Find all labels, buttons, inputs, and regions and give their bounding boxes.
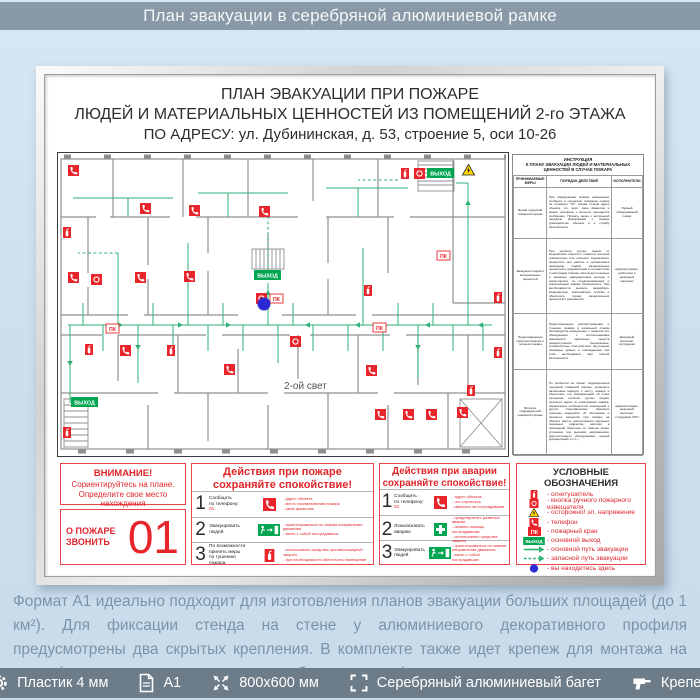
action-notes: - ориентироваться по знакам направления … <box>452 544 509 563</box>
legend-panel: УСЛОВНЫЕ ОБОЗНАЧЕНИЯ - огнетушитель - кн… <box>516 463 646 565</box>
legend-label: - телефон <box>547 519 578 526</box>
main-route-icon <box>523 545 545 554</box>
spec-label: 800х600 мм <box>239 675 319 691</box>
marker-phone-icon <box>366 365 377 376</box>
legend-item: ВЫХОД - основной выход <box>521 536 641 545</box>
action-row: 3 Эвакуировать людей - ориентироваться п… <box>380 540 509 566</box>
instruction-action: При наличии угрозы людям от воздействия … <box>547 238 611 314</box>
marker-exit-sign: ВЫХОД <box>427 168 454 178</box>
spec-label: Пластик 4 мм <box>17 675 108 691</box>
floor-plan-svg: ПКПКПКПКВЫХОДВЫХОДВЫХОД <box>58 153 508 456</box>
instruction-measure: Предотвращение распространения и тушение… <box>514 314 547 370</box>
resize-arrows-icon <box>211 673 231 693</box>
col-action: ПОРЯДОК ДЕЙСТВИЙ <box>547 175 611 187</box>
action-number: 2 <box>380 519 394 541</box>
board-title-line3: ПО АДРЕСУ: ул. Дубининская, д. 53, строе… <box>50 125 650 145</box>
spec-item: 800х600 мм <box>211 673 319 693</box>
svg-text:ВЫХОД: ВЫХОД <box>525 539 543 544</box>
marker-phone-icon <box>403 409 414 420</box>
action-number: 1 <box>380 491 394 513</box>
fire-hydrant-icon: ПК <box>528 527 541 536</box>
action-row: 1 Сообщить по телефону:01 - адрес объект… <box>192 491 373 517</box>
evacuation-routes <box>68 180 492 403</box>
action-label: Сообщить по телефону:01 <box>209 496 255 513</box>
page: { "header": { "title": "План эвакуации в… <box>0 0 700 700</box>
svg-text:ВЫХОД: ВЫХОД <box>430 172 451 178</box>
marker-extinguisher-icon <box>467 385 475 396</box>
instruction-measure: Вызов городской пожарной охраны <box>514 188 547 239</box>
instruction-action: Предотвращение распространения и тушение… <box>547 314 611 370</box>
marker-extinguisher-icon <box>167 345 175 356</box>
fire-call-box: О ПОЖАРЕ ЗВОНИТЬ 01 <box>60 509 186 565</box>
accident-actions-panel: Действия при аварии сохраняйте спокойств… <box>379 463 510 565</box>
document-icon <box>138 673 155 693</box>
legend-item: - кнопка ручного пожарного извещателя <box>521 499 641 508</box>
legend-label: - основной выход <box>547 537 600 544</box>
action-row: 2 Локализовать аварию - предотвратить ра… <box>380 515 509 541</box>
marker-phone-icon <box>135 272 146 283</box>
board-title-line1: ПЛАН ЭВАКУАЦИИ ПРИ ПОЖАРЕ <box>50 85 650 105</box>
marker-phone-icon <box>457 407 468 418</box>
board-title: ПЛАН ЭВАКУАЦИИ ПРИ ПОЖАРЕ ЛЮДЕЙ И МАТЕРИ… <box>50 85 650 145</box>
action-notes: - ориентироваться по знакам направления … <box>283 523 373 537</box>
fire-actions-panel: Действия при пожаре сохраняйте спокойств… <box>191 463 374 565</box>
fire-actions-title1: Действия при пожаре <box>192 466 373 479</box>
accident-actions-title2: сохраняйте спокойствие! <box>380 478 509 490</box>
legend-label: - пожарный кран <box>547 528 598 535</box>
attention-line2: Определите свое место нахождения <box>61 490 185 509</box>
instruction-row: Эвакуация людей и материальных ценностей… <box>514 238 643 314</box>
marker-electric-warning-icon <box>462 164 474 175</box>
attention-line1: Сориентируйтесь на плане. <box>61 480 185 490</box>
spec-item: А1 <box>138 673 181 693</box>
legend-title: УСЛОВНЫЕ ОБОЗНАЧЕНИЯ <box>521 467 641 489</box>
svg-text:ПК: ПК <box>109 327 117 333</box>
extinguisher-icon <box>529 490 539 499</box>
marker-phone-icon <box>426 409 437 420</box>
marker-phone-icon <box>120 345 131 356</box>
action-number: 3 <box>380 542 394 564</box>
marker-you-are-here <box>258 298 271 311</box>
marker-extinguisher-icon <box>401 168 409 179</box>
action-label: По возможности принять меры по тушению п… <box>209 544 255 566</box>
marker-phone-icon <box>224 364 235 375</box>
instruction-row: Предотвращение распространения и тушение… <box>514 314 643 370</box>
instruction-measure: Встреча подразделений пожарной охраны <box>514 369 547 455</box>
spec-item: Пластик 4 мм <box>0 673 108 693</box>
svg-text:ВЫХОД: ВЫХОД <box>257 274 278 280</box>
legend-item: - осторожно! эл. напряжение <box>521 508 641 517</box>
marker-hydrant-icon: ПК <box>437 251 450 260</box>
stairs <box>64 161 502 447</box>
marker-extinguisher-icon <box>494 292 502 303</box>
accident-actions-title1: Действия при аварии <box>380 466 509 478</box>
marker-phone-icon <box>68 165 79 176</box>
marker-phone-icon <box>68 272 79 283</box>
spec-label: Крепеж <box>661 675 700 691</box>
action-row: 2 Эвакуировать людей - ориентироваться п… <box>192 517 373 543</box>
route-arrows <box>67 200 483 366</box>
product-title: План эвакуации в серебряной алюминиевой … <box>143 6 557 26</box>
marker-exit-sign: ВЫХОД <box>71 397 98 407</box>
legend-label: - осторожно! эл. напряжение <box>547 509 635 516</box>
marker-phone-icon <box>375 409 386 420</box>
spare-route-icon <box>523 554 545 563</box>
second-light-label: 2-ой свет <box>284 381 327 392</box>
plan-frame: ПЛАН ЭВАКУАЦИИ ПРИ ПОЖАРЕ ЛЮДЕЙ И МАТЕРИ… <box>36 66 664 585</box>
action-number: 3 <box>192 544 209 566</box>
marker-hydrant-icon: ПК <box>106 324 119 333</box>
legend-label: - запасной путь эвакуации <box>547 555 628 562</box>
extinguisher-icon <box>263 549 276 562</box>
attention-box: ВНИМАНИЕ! Сориентируйтесь на плане. Опре… <box>60 463 186 505</box>
fire-actions-title2: сохраняйте спокойствие! <box>192 479 373 492</box>
you-are-here-icon <box>529 564 539 573</box>
instruction-action: По прибытии на объект подразделения горо… <box>547 369 611 455</box>
action-notes: - адрес объекта- что случилось- имеются … <box>452 495 509 509</box>
marker-extinguisher-icon <box>63 227 71 238</box>
col-exec: ИСПОЛНИТЕЛИ <box>611 175 642 187</box>
legend-label: - вы находитесь здесь <box>547 565 615 572</box>
action-notes: - адрес объекта- место возникновения пож… <box>283 497 373 511</box>
accident-actions-title: Действия при аварии сохраняйте спокойств… <box>380 464 509 489</box>
action-number: 1 <box>192 493 209 515</box>
instruction-exec: Администрация, работники и дежурный перс… <box>611 238 642 314</box>
gear-icon <box>0 673 9 693</box>
marker-extinguisher-icon <box>364 285 372 296</box>
col-measure: ПРИНИМАЕМЫЕ МЕРЫ <box>514 175 547 187</box>
marker-call-point-icon <box>91 274 102 285</box>
instruction-row: Встреча подразделений пожарной охраны По… <box>514 369 643 455</box>
frame-mat: ПЛАН ЭВАКУАЦИИ ПРИ ПОЖАРЕ ЛЮДЕЙ И МАТЕРИ… <box>45 75 655 576</box>
instruction-grid: ПРИНИМАЕМЫЕ МЕРЫ ПОРЯДОК ДЕЙСТВИЙ ИСПОЛН… <box>513 175 643 456</box>
marker-hydrant-icon: ПК <box>373 323 386 332</box>
marker-phone-icon <box>184 271 195 282</box>
instruction-exec: Первый обнаруживший пожар <box>611 188 642 239</box>
svg-text:ПК: ПК <box>376 326 384 332</box>
svg-text:ПК: ПК <box>440 254 448 260</box>
call-point-icon <box>528 499 540 508</box>
fire-actions-title: Действия при пожаре сохраняйте спокойств… <box>192 464 373 491</box>
first-aid-cross-icon <box>434 523 447 536</box>
exit-route-icon <box>258 524 280 536</box>
phone-icon <box>528 518 540 527</box>
legend-item: - основной путь эвакуации <box>521 545 641 554</box>
phone-icon <box>263 498 276 511</box>
spec-footer-bar: Пластик 4 мм А1 800х600 мм Серебряный ал… <box>0 668 700 698</box>
marker-call-point-icon <box>414 168 425 179</box>
spec-label: Серебряный алюминиевый багет <box>377 675 601 691</box>
action-row: 3 По возможности принять меры по тушению… <box>192 542 373 568</box>
legend-label: - основной путь эвакуации <box>547 546 628 553</box>
action-label: Локализовать аварию <box>394 524 428 535</box>
svg-text:ПК: ПК <box>273 297 281 303</box>
instruction-row: Вызов городской пожарной охраны При обна… <box>514 188 643 239</box>
marker-phone-icon <box>189 205 200 216</box>
svg-text:ВЫХОД: ВЫХОД <box>74 401 95 407</box>
marker-phone-icon <box>140 203 151 214</box>
action-label: Сообщить по телефону:01 <box>394 494 428 511</box>
evacuation-board: ПЛАН ЭВАКУАЦИИ ПРИ ПОЖАРЕ ЛЮДЕЙ И МАТЕРИ… <box>50 80 650 571</box>
marker-extinguisher-icon <box>494 347 502 358</box>
top-title-bar: План эвакуации в серебряной алюминиевой … <box>0 2 700 30</box>
board-title-line2: ЛЮДЕЙ И МАТЕРИАЛЬНЫХ ЦЕННОСТЕЙ ИЗ ПОМЕЩЕ… <box>50 105 650 125</box>
spec-item: Серебряный алюминиевый багет <box>349 673 601 693</box>
legend-item: - вы находитесь здесь <box>521 564 641 573</box>
marker-extinguisher-icon <box>63 427 71 438</box>
legend-item: ПК - пожарный кран <box>521 527 641 536</box>
exit-sign-icon: ВЫХОД <box>522 537 546 545</box>
spec-label: А1 <box>163 675 181 691</box>
instruction-table: ИНСТРУКЦИЯ К ПЛАНУ ЭВАКУАЦИИ ЛЮДЕЙ И МАТ… <box>512 154 644 455</box>
legend-item: - телефон <box>521 518 641 527</box>
phone-icon <box>434 496 447 509</box>
action-label: Эвакуировать людей <box>209 524 255 535</box>
instruction-exec: Дежурный персонал, сотрудники <box>611 314 642 370</box>
spec-item: Крепеж <box>631 674 700 693</box>
marker-call-point-icon <box>290 336 301 347</box>
instruction-action: При обнаружении пожара немедленно сообщи… <box>547 188 611 239</box>
action-number: 2 <box>192 519 209 541</box>
plan-markers: ПКПКПКПКВЫХОДВЫХОДВЫХОД <box>63 164 502 438</box>
instruction-measure: Эвакуация людей и материальных ценностей <box>514 238 547 314</box>
action-label: Эвакуировать людей <box>394 548 428 559</box>
marker-hydrant-icon: ПК <box>270 294 283 303</box>
marker-extinguisher-icon <box>85 344 93 355</box>
legend-item: - запасной путь эвакуации <box>521 554 641 563</box>
action-row: 1 Сообщить по телефону:01 - адрес объект… <box>380 489 509 515</box>
exit-route-icon <box>429 547 451 559</box>
instruction-title: ИНСТРУКЦИЯ К ПЛАНУ ЭВАКУАЦИИ ЛЮДЕЙ И МАТ… <box>513 155 643 175</box>
svg-text:ПК: ПК <box>530 530 538 536</box>
frame-corners-icon <box>349 673 369 693</box>
marker-phone-icon <box>259 206 270 217</box>
attention-title: ВНИМАНИЕ! <box>61 468 185 480</box>
electric-warning-icon <box>528 508 540 517</box>
instruction-exec: Администрация, дежурный персонал, сотруд… <box>611 369 642 455</box>
action-notes: - предотвратить развитие аварии- оказать… <box>452 516 509 545</box>
floor-plan: ПКПКПКПКВЫХОДВЫХОДВЫХОД 2-ой свет <box>57 152 509 457</box>
marker-exit-sign: ВЫХОД <box>254 270 281 280</box>
fire-call-number: 01 <box>117 512 185 562</box>
action-notes: - использовать средства противопожарной … <box>283 548 373 562</box>
drill-icon <box>631 674 653 693</box>
fire-call-label: О ПОЖАРЕ ЗВОНИТЬ <box>61 526 117 548</box>
